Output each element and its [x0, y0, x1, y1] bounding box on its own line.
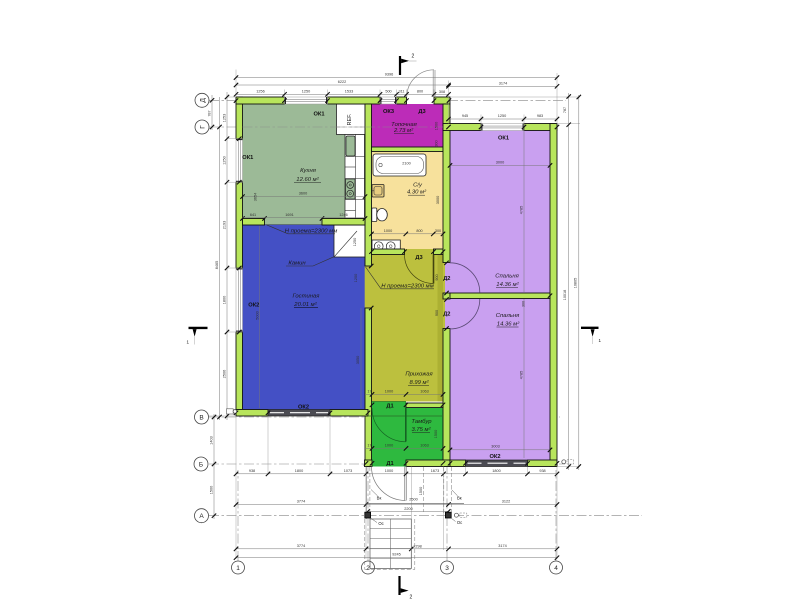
svg-text:ОК2: ОК2	[489, 454, 500, 460]
svg-text:1063: 1063	[420, 390, 428, 394]
svg-text:1000: 1000	[385, 444, 393, 448]
svg-text:ОК3: ОК3	[383, 109, 394, 115]
svg-text:Н проема=2300 мм: Н проема=2300 мм	[381, 283, 433, 289]
svg-text:983: 983	[537, 114, 543, 118]
svg-text:787: 787	[208, 110, 212, 116]
svg-text:1250: 1250	[223, 156, 227, 164]
svg-text:12.60 м²: 12.60 м²	[296, 177, 319, 183]
svg-text:1073: 1073	[344, 469, 352, 473]
svg-text:1500: 1500	[419, 487, 423, 495]
svg-text:Д3: Д3	[415, 255, 422, 261]
svg-text:ОК1: ОК1	[498, 136, 509, 142]
svg-text:14.36 м²: 14.36 м²	[496, 282, 519, 288]
svg-text:300: 300	[435, 229, 441, 233]
svg-text:10805: 10805	[573, 278, 577, 289]
svg-text:С/у: С/у	[413, 183, 423, 189]
svg-text:Б: Б	[199, 461, 203, 468]
svg-text:2193: 2193	[223, 221, 227, 229]
svg-text:1200: 1200	[354, 274, 358, 282]
svg-text:1000: 1000	[384, 229, 392, 233]
svg-text:Камин: Камин	[288, 260, 306, 266]
svg-text:4785: 4785	[519, 206, 523, 214]
svg-text:800: 800	[417, 89, 423, 93]
svg-text:Вк: Вк	[457, 496, 462, 501]
svg-text:3.75 м²: 3.75 м²	[411, 427, 431, 433]
svg-text:1800: 1800	[492, 469, 500, 473]
svg-text:308: 308	[439, 90, 445, 94]
svg-text:17: 17	[367, 390, 371, 394]
svg-text:2200: 2200	[404, 507, 412, 511]
svg-text:300: 300	[434, 140, 438, 146]
svg-text:8.99 м²: 8.99 м²	[409, 380, 429, 386]
svg-text:2: 2	[366, 565, 370, 572]
svg-text:ОК2: ОК2	[298, 404, 309, 410]
svg-text:2100: 2100	[402, 162, 410, 166]
svg-text:3003: 3003	[491, 445, 499, 449]
svg-text:Д1: Д1	[386, 461, 393, 467]
svg-text:Спальня: Спальня	[495, 273, 519, 279]
svg-text:1500: 1500	[434, 122, 438, 130]
svg-text:3174: 3174	[498, 544, 506, 548]
svg-text:1250: 1250	[353, 238, 357, 246]
svg-text:1: 1	[236, 565, 240, 572]
svg-text:14.36 м²: 14.36 м²	[497, 321, 520, 327]
svg-text:1500: 1500	[210, 486, 214, 494]
svg-text:300: 300	[522, 301, 526, 307]
svg-text:2: 2	[410, 595, 413, 600]
svg-text:4: 4	[554, 565, 558, 572]
svg-text:4785: 4785	[519, 371, 523, 379]
svg-text:3050: 3050	[356, 356, 360, 364]
svg-text:1691: 1691	[285, 213, 293, 217]
svg-text:Д: Д	[199, 98, 206, 103]
svg-text:Гостиная: Гостиная	[293, 293, 321, 299]
svg-text:3174: 3174	[499, 81, 507, 85]
svg-text:1403: 1403	[210, 436, 214, 444]
svg-text:REF.: REF.	[347, 113, 353, 125]
svg-text:Д2: Д2	[443, 276, 450, 282]
svg-text:8465: 8465	[215, 261, 219, 269]
svg-text:Ос: Ос	[378, 521, 383, 526]
svg-text:Прихожая: Прихожая	[405, 371, 433, 377]
svg-text:ОК1: ОК1	[313, 112, 324, 118]
svg-text:Тамбур: Тамбур	[411, 419, 432, 425]
svg-text:2506: 2506	[223, 370, 227, 378]
svg-text:Д3: Д3	[418, 109, 425, 115]
svg-text:787: 787	[563, 107, 567, 113]
svg-text:Вк: Вк	[377, 496, 382, 501]
svg-text:800: 800	[416, 229, 422, 233]
svg-text:938: 938	[539, 469, 545, 473]
svg-text:1000: 1000	[385, 390, 393, 394]
svg-text:938: 938	[249, 469, 255, 473]
svg-text:ОК1: ОК1	[242, 155, 253, 161]
svg-text:311: 311	[398, 89, 404, 93]
svg-text:Ос: Ос	[457, 520, 462, 525]
svg-text:1250: 1250	[498, 114, 506, 118]
svg-text:3000: 3000	[496, 161, 504, 165]
svg-text:1256: 1256	[256, 89, 264, 93]
svg-text:6222: 6222	[338, 80, 346, 84]
svg-text:500: 500	[385, 89, 391, 93]
svg-text:1063: 1063	[420, 444, 428, 448]
svg-text:2: 2	[412, 54, 415, 60]
svg-text:Кухня: Кухня	[300, 168, 317, 174]
svg-text:9245: 9245	[392, 553, 400, 557]
svg-text:2500: 2500	[409, 498, 417, 502]
svg-text:В: В	[199, 414, 203, 421]
svg-text:1500: 1500	[434, 430, 438, 438]
svg-text:20.01 м²: 20.01 м²	[293, 302, 317, 308]
svg-text:2.73 м²: 2.73 м²	[393, 128, 414, 134]
svg-text:Д1: Д1	[386, 404, 393, 410]
svg-text:3122: 3122	[502, 500, 510, 504]
svg-text:641: 641	[250, 213, 256, 217]
svg-text:ОК2: ОК2	[248, 302, 259, 308]
svg-text:Г: Г	[199, 125, 206, 129]
svg-text:Топочная: Топочная	[391, 122, 417, 128]
svg-text:Н проема=2300 мм: Н проема=2300 мм	[285, 228, 337, 234]
svg-text:7298: 7298	[413, 544, 421, 548]
svg-text:1800: 1800	[295, 469, 303, 473]
svg-text:1253: 1253	[223, 114, 227, 122]
svg-text:900: 900	[435, 274, 439, 280]
svg-text:10018: 10018	[563, 290, 567, 301]
svg-text:1800: 1800	[223, 296, 227, 304]
svg-text:4.30 м²: 4.30 м²	[407, 190, 427, 196]
svg-text:17: 17	[367, 444, 371, 448]
svg-text:3654: 3654	[254, 193, 258, 201]
svg-text:900: 900	[435, 310, 439, 316]
svg-text:Спальня: Спальня	[496, 313, 520, 319]
svg-text:3600: 3600	[299, 192, 307, 196]
svg-text:Д2: Д2	[443, 312, 450, 318]
svg-text:945: 945	[462, 114, 468, 118]
svg-text:5000: 5000	[255, 311, 259, 319]
svg-text:9396: 9396	[385, 73, 393, 77]
svg-text:А: А	[199, 513, 204, 520]
svg-text:3774: 3774	[297, 500, 305, 504]
svg-text:3: 3	[445, 565, 449, 572]
svg-text:3000: 3000	[436, 196, 440, 204]
svg-text:1533: 1533	[345, 89, 353, 93]
svg-text:1246: 1246	[339, 213, 347, 217]
svg-text:1000: 1000	[385, 469, 393, 473]
svg-text:1673: 1673	[431, 469, 439, 473]
svg-text:1250: 1250	[302, 89, 310, 93]
svg-text:3774: 3774	[297, 544, 305, 548]
